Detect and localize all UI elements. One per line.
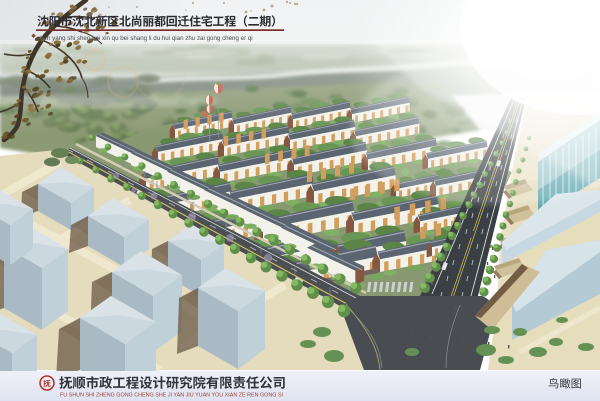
svg-text:FU SHUN SHI ZHENG GONG CHENG S: FU SHUN SHI ZHENG GONG CHENG SHE JI YAN …	[60, 393, 283, 399]
svg-text:shen yang shi shen bei xin qu: shen yang shi shen bei xin qu bei shang …	[37, 35, 253, 42]
